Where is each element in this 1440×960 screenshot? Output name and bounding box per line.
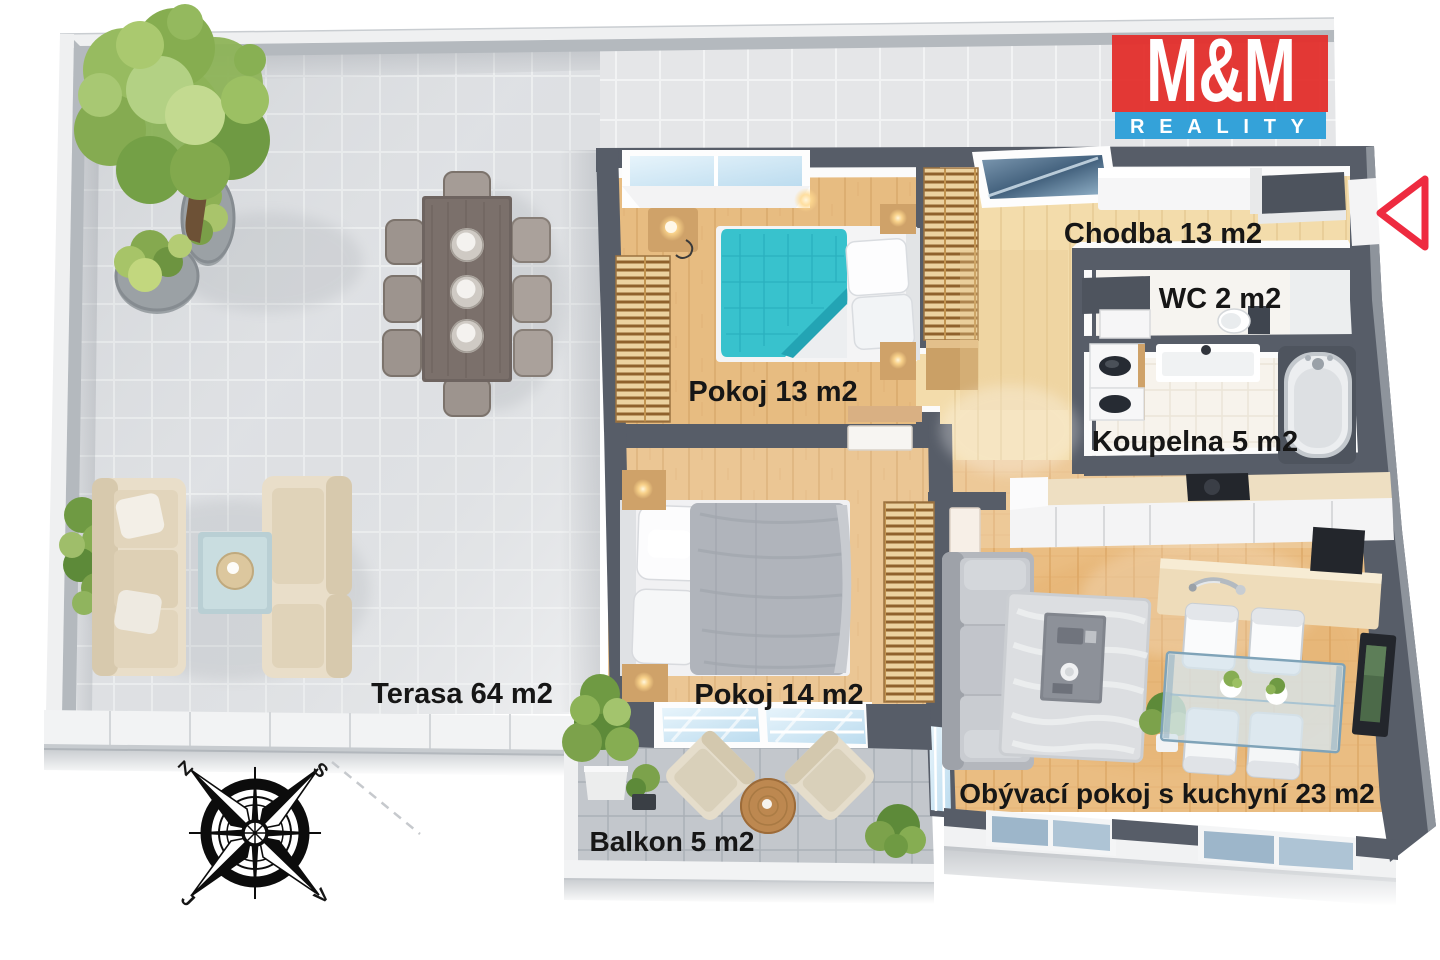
svg-text:Chodba 13 m2: Chodba 13 m2: [1064, 218, 1262, 250]
svg-text:Balkon 5 m2: Balkon 5 m2: [590, 826, 755, 857]
svg-text:Obývací pokoj s kuchyní 23 m2: Obývací pokoj s kuchyní 23 m2: [959, 778, 1375, 809]
svg-text:WC 2 m2: WC 2 m2: [1159, 283, 1281, 315]
svg-text:Koupelna 5 m2: Koupelna 5 m2: [1092, 426, 1298, 458]
svg-text:Pokoj 14 m2: Pokoj 14 m2: [694, 679, 863, 711]
svg-text:Terasa 64 m2: Terasa 64 m2: [371, 678, 553, 710]
svg-text:M&M: M&M: [1146, 21, 1296, 121]
svg-text:Pokoj 13 m2: Pokoj 13 m2: [688, 376, 857, 408]
